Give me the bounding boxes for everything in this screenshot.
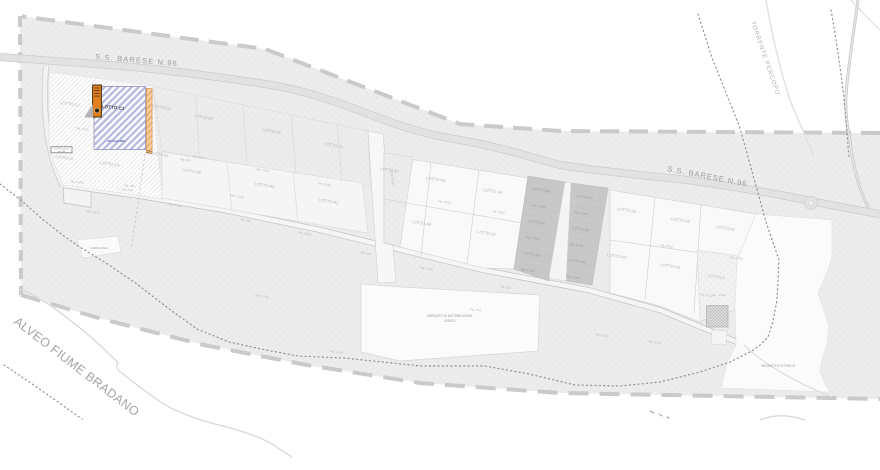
- svg-text:IDRICO: IDRICO: [444, 319, 456, 323]
- svg-text:mq. 4.120: mq. 4.120: [712, 293, 726, 297]
- svg-text:IMPIANTO ELETTRICO: IMPIANTO ELETTRICO: [761, 364, 796, 368]
- svg-text:CABINA ENEL: CABINA ENEL: [90, 246, 109, 250]
- svg-text:mq. 500: mq. 500: [58, 151, 66, 153]
- svg-text:eff. mq 5.000: eff. mq 5.000: [107, 139, 125, 143]
- svg-text:IMPIANTO DI DISTRIBUZIONE: IMPIANTO DI DISTRIBUZIONE: [428, 314, 473, 318]
